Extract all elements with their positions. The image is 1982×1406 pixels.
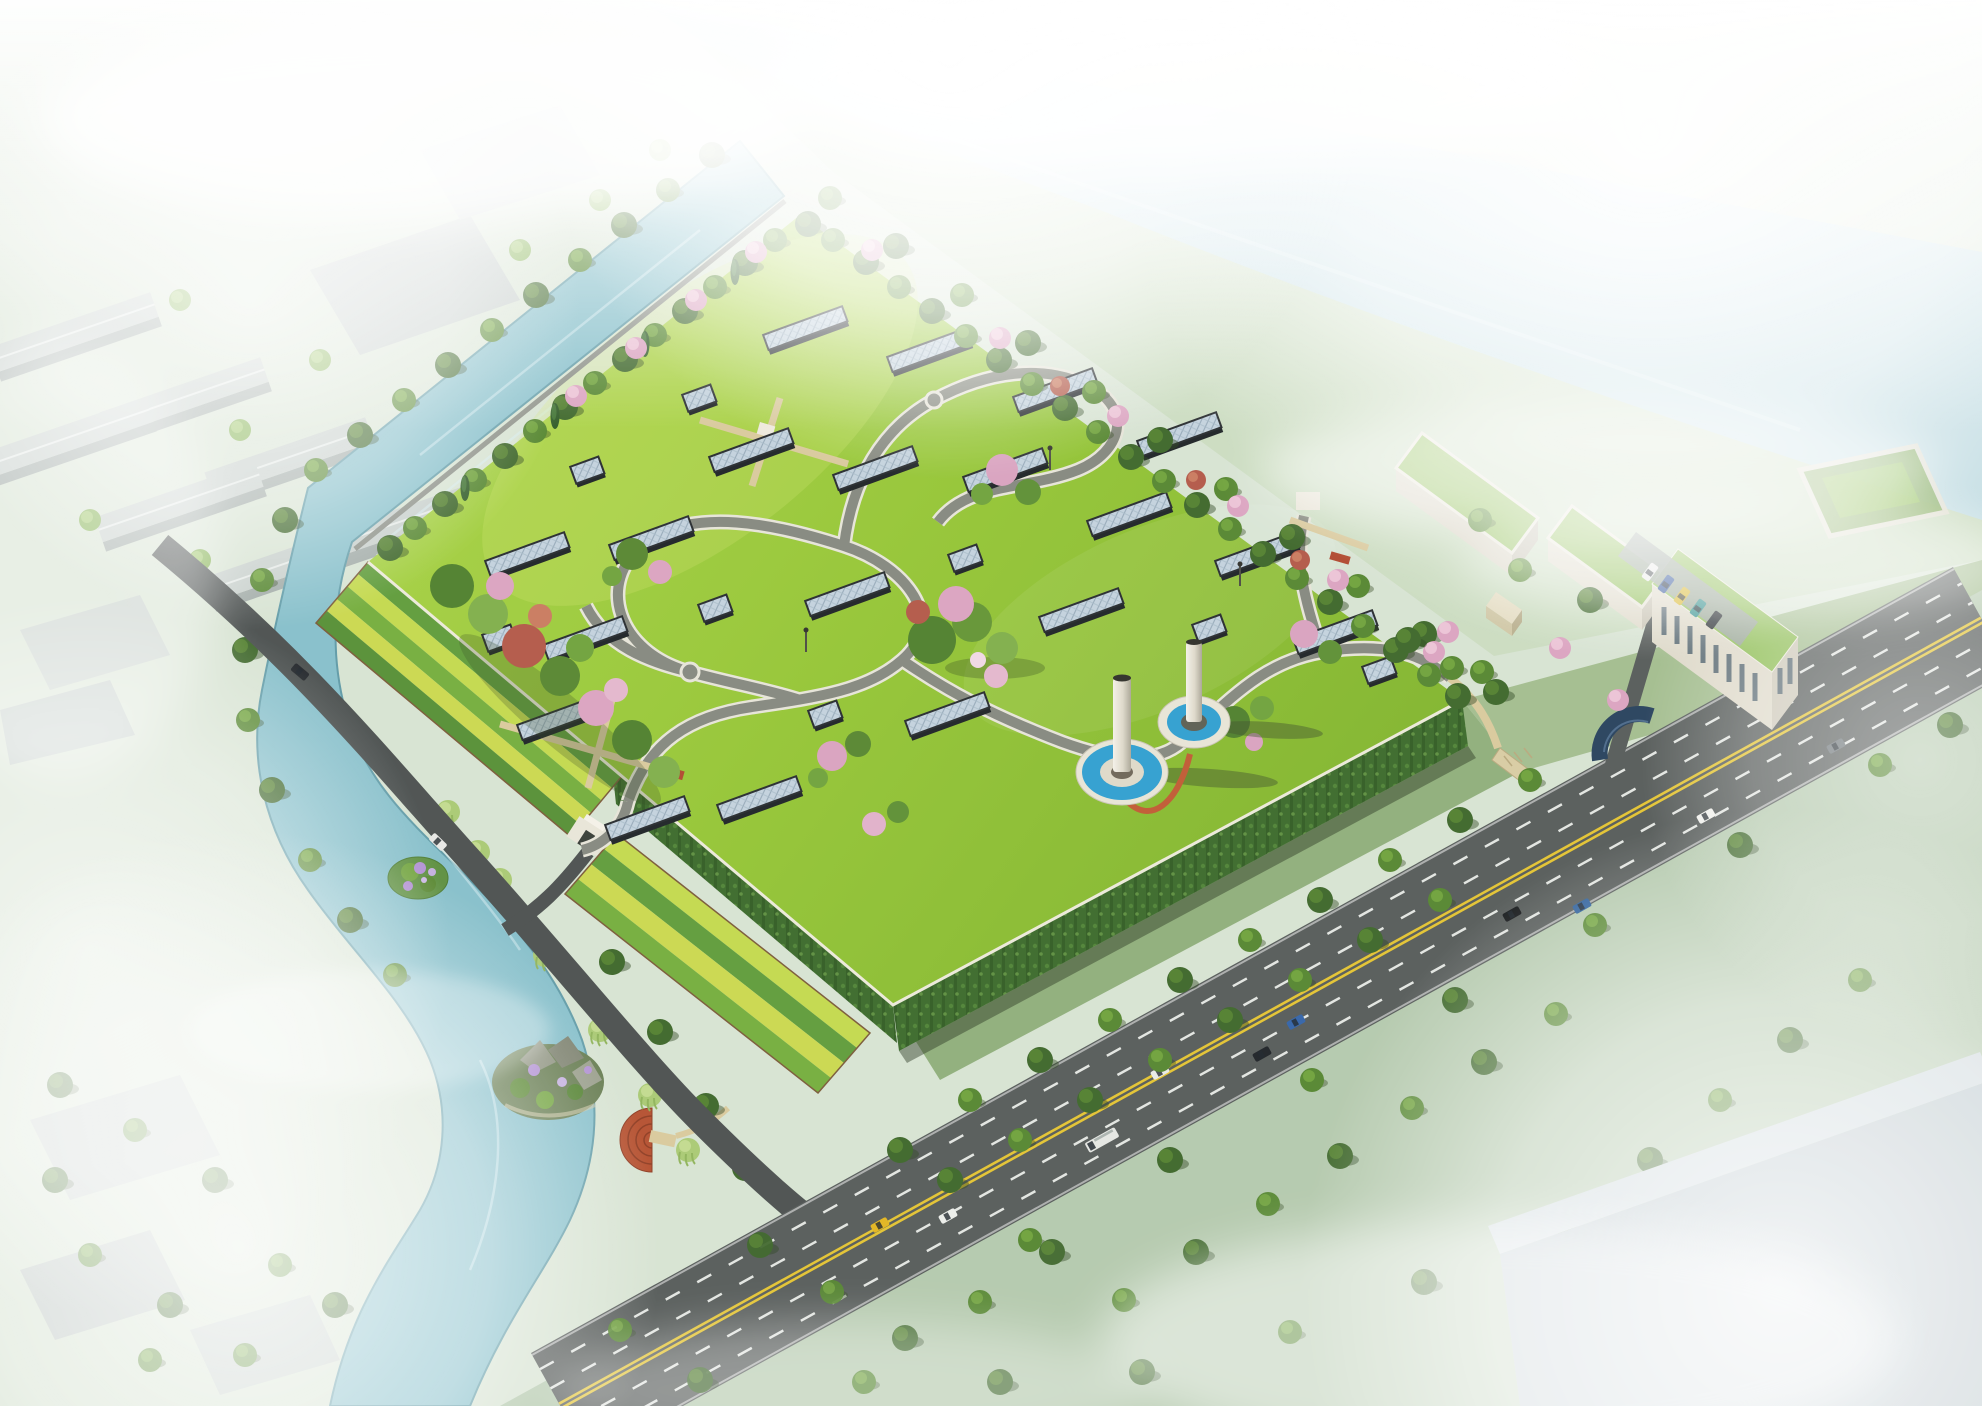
atmosphere-veil [0,0,1982,1406]
aerial-rendering-canvas: Bird's-eye rendering of an eco-park buil… [0,0,1982,1406]
fog-overlay [0,0,1982,1406]
